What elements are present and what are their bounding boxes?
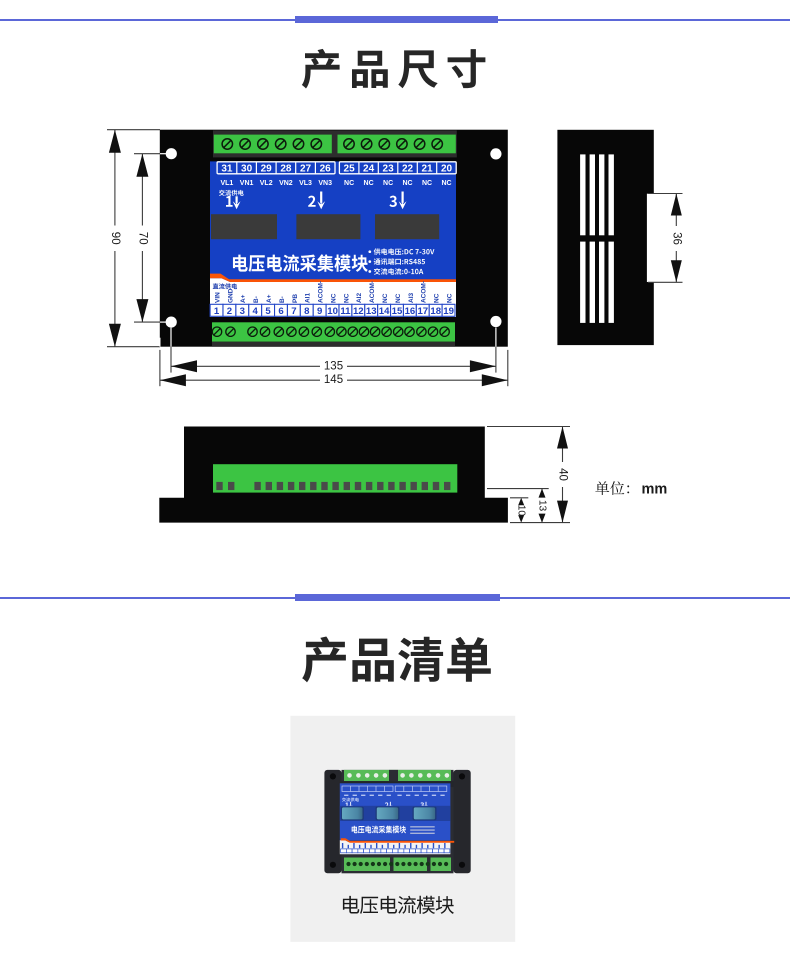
svg-text:NC: NC <box>395 293 402 303</box>
svg-text:40: 40 <box>557 468 569 481</box>
svg-text:NC: NC <box>447 293 454 303</box>
svg-text:A+: A+ <box>266 294 273 303</box>
svg-text:70: 70 <box>136 232 148 245</box>
svg-text:AI2: AI2 <box>356 293 363 304</box>
svg-text:VL3: VL3 <box>299 180 312 187</box>
svg-text:23: 23 <box>383 164 395 175</box>
svg-text:13: 13 <box>537 500 548 512</box>
svg-text:22: 22 <box>402 164 414 175</box>
svg-text:16: 16 <box>405 306 416 317</box>
svg-text:29: 29 <box>261 164 273 175</box>
svg-text:VN1: VN1 <box>240 180 254 187</box>
svg-text:14: 14 <box>379 306 390 317</box>
svg-text:19: 19 <box>443 306 454 317</box>
svg-text:135: 135 <box>324 360 343 372</box>
svg-text:NC: NC <box>382 293 389 303</box>
svg-text:NC: NC <box>434 293 441 303</box>
svg-text:ACOM-: ACOM- <box>421 281 428 303</box>
svg-text:1: 1 <box>214 306 220 317</box>
svg-text:B-: B- <box>279 296 286 303</box>
svg-text:24: 24 <box>363 164 375 175</box>
svg-text:NC: NC <box>343 293 350 303</box>
svg-text:10: 10 <box>327 306 338 317</box>
svg-text:NC: NC <box>364 180 374 187</box>
svg-text:20: 20 <box>441 164 453 175</box>
svg-text:NC: NC <box>331 293 338 303</box>
svg-text:NC: NC <box>441 180 451 187</box>
svg-text:7: 7 <box>291 306 296 317</box>
svg-text:12: 12 <box>353 306 364 317</box>
svg-text:36: 36 <box>670 232 682 245</box>
svg-text:10: 10 <box>516 505 527 517</box>
svg-text:21: 21 <box>421 164 433 175</box>
svg-text:5: 5 <box>265 306 271 317</box>
svg-text:PB: PB <box>292 294 299 303</box>
svg-text:ACOM-: ACOM- <box>369 281 376 303</box>
svg-text:VN2: VN2 <box>279 180 293 187</box>
svg-text:B-: B- <box>253 296 260 303</box>
svg-text:90: 90 <box>109 232 121 245</box>
svg-text:30: 30 <box>241 164 253 175</box>
svg-text:NC: NC <box>344 180 354 187</box>
svg-text:3: 3 <box>240 306 245 317</box>
svg-text:25: 25 <box>344 164 356 175</box>
svg-text:27: 27 <box>300 164 312 175</box>
svg-text:ACOM-: ACOM- <box>318 281 325 303</box>
svg-text:VL2: VL2 <box>260 180 273 187</box>
svg-text:6: 6 <box>278 306 283 317</box>
svg-text:15: 15 <box>392 306 403 317</box>
svg-text:NC: NC <box>402 180 412 187</box>
svg-text:VIN: VIN <box>214 292 221 303</box>
svg-text:VN3: VN3 <box>318 180 332 187</box>
svg-text:A+: A+ <box>240 294 247 303</box>
svg-text:GND: GND <box>227 288 234 303</box>
svg-text:145: 145 <box>324 374 343 386</box>
svg-text:VL1: VL1 <box>220 180 233 187</box>
svg-text:9: 9 <box>317 306 322 317</box>
svg-text:NC: NC <box>383 180 393 187</box>
svg-text:13: 13 <box>366 306 377 317</box>
svg-text:8: 8 <box>304 306 310 317</box>
svg-text:28: 28 <box>280 164 292 175</box>
svg-text:mm: mm <box>642 482 668 498</box>
svg-text:NC: NC <box>422 180 432 187</box>
svg-text:2: 2 <box>227 306 232 317</box>
svg-text:AI3: AI3 <box>408 293 415 304</box>
svg-text:31: 31 <box>221 164 233 175</box>
svg-text:18: 18 <box>430 306 441 317</box>
svg-text:26: 26 <box>320 164 332 175</box>
svg-text:11: 11 <box>340 306 351 317</box>
svg-text:17: 17 <box>417 306 428 317</box>
svg-text:4: 4 <box>253 306 259 317</box>
svg-text:AI1: AI1 <box>305 293 312 304</box>
